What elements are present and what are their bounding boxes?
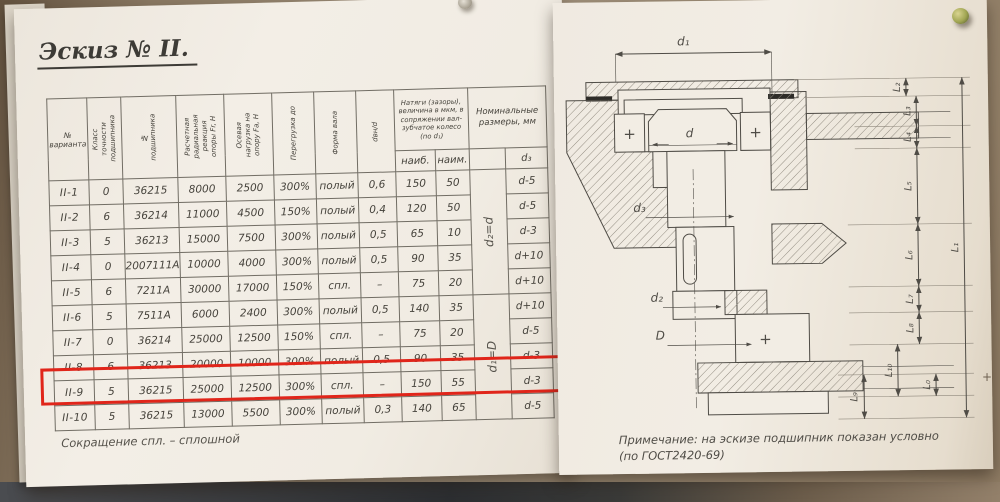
cell-shaft_form: полый [322,398,365,424]
dim-label-d1: d₁ [677,34,690,48]
dim-label-L2: L₂ [892,82,903,92]
col-header-variant: № варианта [47,98,89,181]
dim-label-L7: L₇ [905,294,916,304]
cell-d_ratio: 0,3 [364,397,403,423]
cell-shaft_form: полый [317,223,360,249]
push-pin-icon [952,8,969,24]
cell-radial_load: 10000 [180,251,229,277]
cell-bearing_no: 2007111А [125,252,181,278]
cell-overload: 300% [275,224,318,250]
dim-label-L3: L₃ [902,106,913,116]
cell-axial_load: 4500 [226,200,275,226]
cell-fit_max: 90 [398,246,439,272]
cell-fit_max: 150 [396,171,437,197]
cell-fit_min: 35 [439,295,474,321]
cell-fit_max: 140 [399,296,440,322]
cell-bearing_no: 7511А [126,302,182,328]
subheader-d3: d₃ [505,147,548,169]
cell-fit_min: 50 [436,195,471,221]
dim-label-d: d [686,126,694,140]
col-header-2: № подшипника [121,96,178,179]
cell-axial_load: 7500 [227,225,276,251]
dim-label-L4: L₄ [903,132,914,142]
col-header-4: Осевая нагрузка на опору Fа, Н [224,93,274,176]
col-header-6: Форма вала [314,91,358,174]
dim-label-d2: d₂ [651,291,664,305]
roller-cross-left: + [623,125,636,143]
cell-fit_min: 20 [440,320,475,346]
cell-bearing_no: 36213 [124,228,180,254]
cell-accuracy_class: 5 [92,304,127,330]
dim-label-L1: L₁ [950,243,961,253]
dim-label-L5: L₅ [903,181,914,191]
cell-d_ratio: 0,5 [360,247,399,273]
cell-shaft_form: спл. [318,273,361,299]
cell-fit_min: 10 [437,220,472,246]
cell-overload: 150% [276,274,319,300]
cell-d_ratio: 0,5 [361,297,400,323]
cell-axial_load: 4000 [228,250,277,276]
cell-axial_load: 12500 [230,325,279,351]
cell-bearing_no: 36215 [129,402,185,428]
dim-label-L8: L₈ [905,323,916,333]
cell-overload: 150% [278,324,321,350]
cell-d_ratio: 0,6 [358,172,397,198]
cell-radial_load: 13000 [184,401,233,427]
cell-variant: II-4 [51,255,92,281]
cell-fit_max: 75 [398,271,439,297]
cell-variant: II-2 [49,205,90,231]
cell-d_ratio: 0,4 [358,197,397,223]
cell-variant: II-5 [51,280,92,306]
cell-d3: d-3 [507,218,550,244]
cell-axial_load: 17000 [228,275,277,301]
table-footnote: Сокращение спл. – сплошной [61,431,240,450]
plus-mark: + [982,370,992,384]
cell-overload: 150% [274,199,317,225]
cell-d3: d+10 [508,268,551,294]
cell-fit_min: 65 [442,395,477,421]
cell-variant: II-6 [52,305,93,331]
cell-radial_load: 6000 [181,301,230,327]
cell-d3: d-5 [506,168,549,194]
dim-label-D: D [656,329,665,343]
cell-overload: 300% [277,299,320,325]
assembly-drawing: d₁ d + + + d₃ d₂ D L₂ L₃ L₄ L₅ L₆ L₇ L₈ … [553,0,994,475]
cell-fit_min: 50 [436,170,471,196]
table-surface-shadow [0,482,1000,502]
cell-variant: II-3 [50,230,91,256]
cell-shaft_form: полый [316,173,359,199]
col-header-3: Расчетная радиальная реакция опоры Fr, Н [176,94,226,177]
cell-fit_max: 140 [402,396,443,422]
cell-fit_max: 75 [400,321,441,347]
cell-d3: d-5 [512,393,555,419]
col-header-7: dвн/d [356,90,396,173]
col-header-1: Класс точности подшипника [87,97,123,180]
cell-d3: d+10 [508,243,551,269]
cell-shaft_form: полый [319,298,362,324]
cell-fit_min: 20 [438,270,473,296]
cell-bearing_no: 7211А [125,277,181,303]
lower-cross: + [759,330,772,348]
dim-label-L6: L₆ [904,250,915,260]
col-group-fit: Натяги (зазоры), величина в мкм, в сопря… [394,88,470,151]
subheader-fit-min: наим. [435,149,470,171]
cell-d_ratio: – [362,322,401,348]
cell-accuracy_class: 6 [91,279,126,305]
cell-shaft_form: спл. [320,323,363,349]
cell-radial_load: 15000 [179,226,228,252]
cell-d3: d-5 [510,318,553,344]
cell-shaft_form: полый [318,248,361,274]
roller-cross-right: + [749,123,762,141]
cell-accuracy_class: 6 [89,204,124,230]
drawing-note-line2: (по ГОСТ2420-69) [619,448,725,463]
cell-radial_load: 11000 [178,201,227,227]
subheader-fit-max: наиб. [395,150,436,172]
dim-label-L10: L₁₀ [884,364,895,378]
dim-label-d3: d₃ [633,201,646,215]
cell-fit_max: 120 [396,196,437,222]
cell-fit_max: 65 [397,221,438,247]
cell-bearing_no: 36215 [123,178,179,204]
cell-overload: 300% [276,249,319,275]
subheader-nominal-left [469,148,506,170]
cell-bearing_no: 36214 [127,327,183,353]
cell-d3: d-5 [506,193,549,219]
cell-accuracy_class: 5 [95,404,130,430]
cell-nominal-merged: d₂=d [470,169,509,295]
dim-label-L0: L₀ [922,380,933,390]
cell-overload: 300% [280,399,323,425]
cell-overload: 300% [274,174,317,200]
cell-accuracy_class: 0 [93,329,128,355]
cell-d3: d+10 [509,293,552,319]
cell-d_ratio: – [360,272,399,298]
cell-shaft_form: полый [316,198,359,224]
cell-accuracy_class: 0 [89,179,124,205]
cell-d_ratio: 0,5 [359,222,398,248]
col-header-5: Перегрузка до [272,92,316,175]
cell-radial_load: 8000 [178,176,227,202]
cell-radial_load: 25000 [182,326,231,352]
cell-fit_min: 35 [438,245,473,271]
cell-variant: II-7 [53,330,94,356]
cell-accuracy_class: 0 [91,254,126,280]
drawing-note-line1: Примечание: на эскизе подшипник показан … [619,429,939,447]
cell-radial_load: 30000 [180,276,229,302]
cell-axial_load: 2400 [229,300,278,326]
cell-axial_load: 2500 [226,175,275,201]
cell-variant: II-10 [55,405,96,431]
col-group-nominal: Номинальные размеры, мм [468,86,548,149]
cell-axial_load: 5500 [232,400,281,426]
cell-accuracy_class: 5 [90,229,125,255]
cell-bearing_no: 36214 [123,203,179,229]
cell-variant: II-1 [49,180,90,206]
drawing-sheet: d₁ d + + + d₃ d₂ D L₂ L₃ L₄ L₅ L₆ L₇ L₈ … [553,0,994,475]
page-title: Эскиз № II. [37,34,198,69]
table-header: № вариантаКласс точности подшипника№ под… [47,86,548,181]
dim-label-L9: L₉ [849,392,860,402]
spec-sheet: Эскиз № II. № вариантаКласс точности под… [14,0,574,487]
